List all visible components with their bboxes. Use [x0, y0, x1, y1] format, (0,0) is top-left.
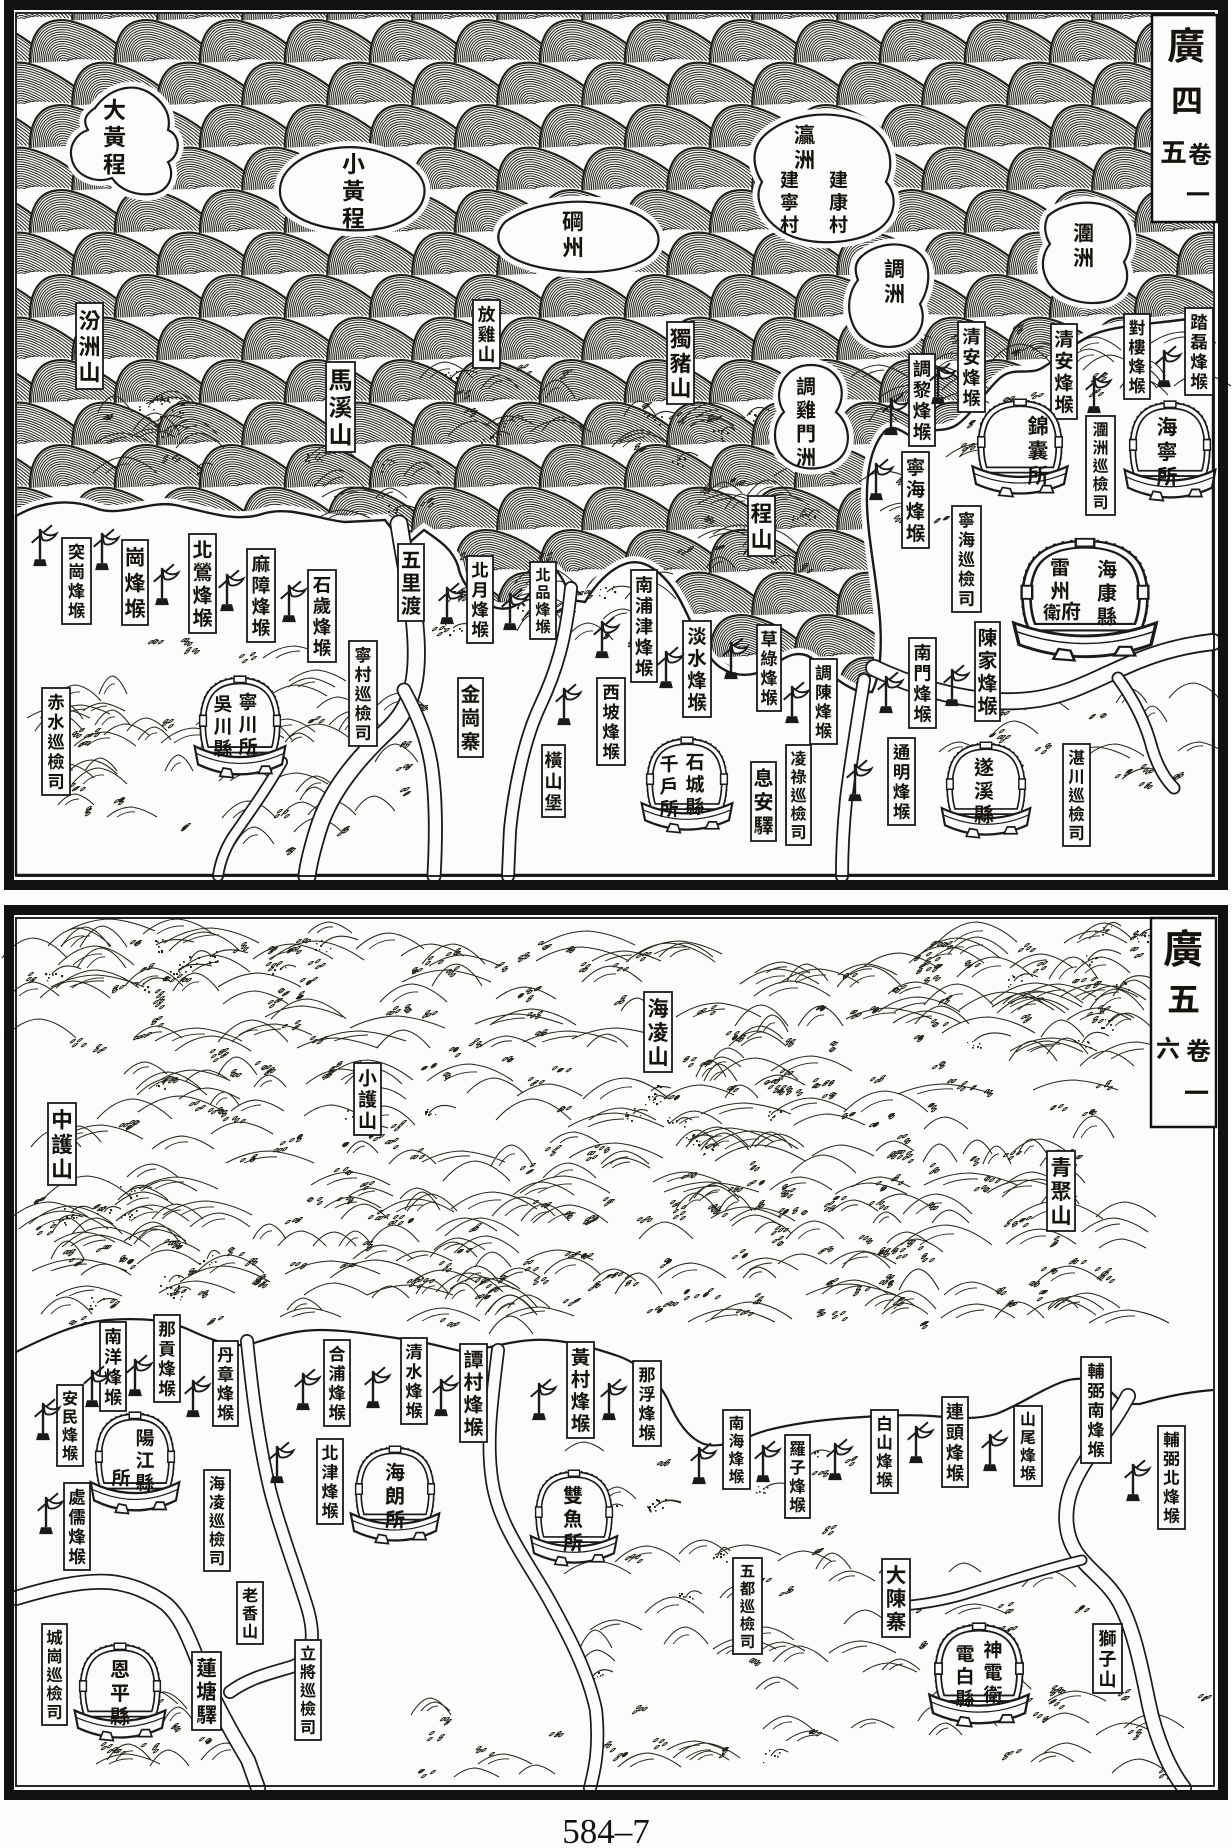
svg-text:584–7: 584–7 [562, 1812, 650, 1848]
